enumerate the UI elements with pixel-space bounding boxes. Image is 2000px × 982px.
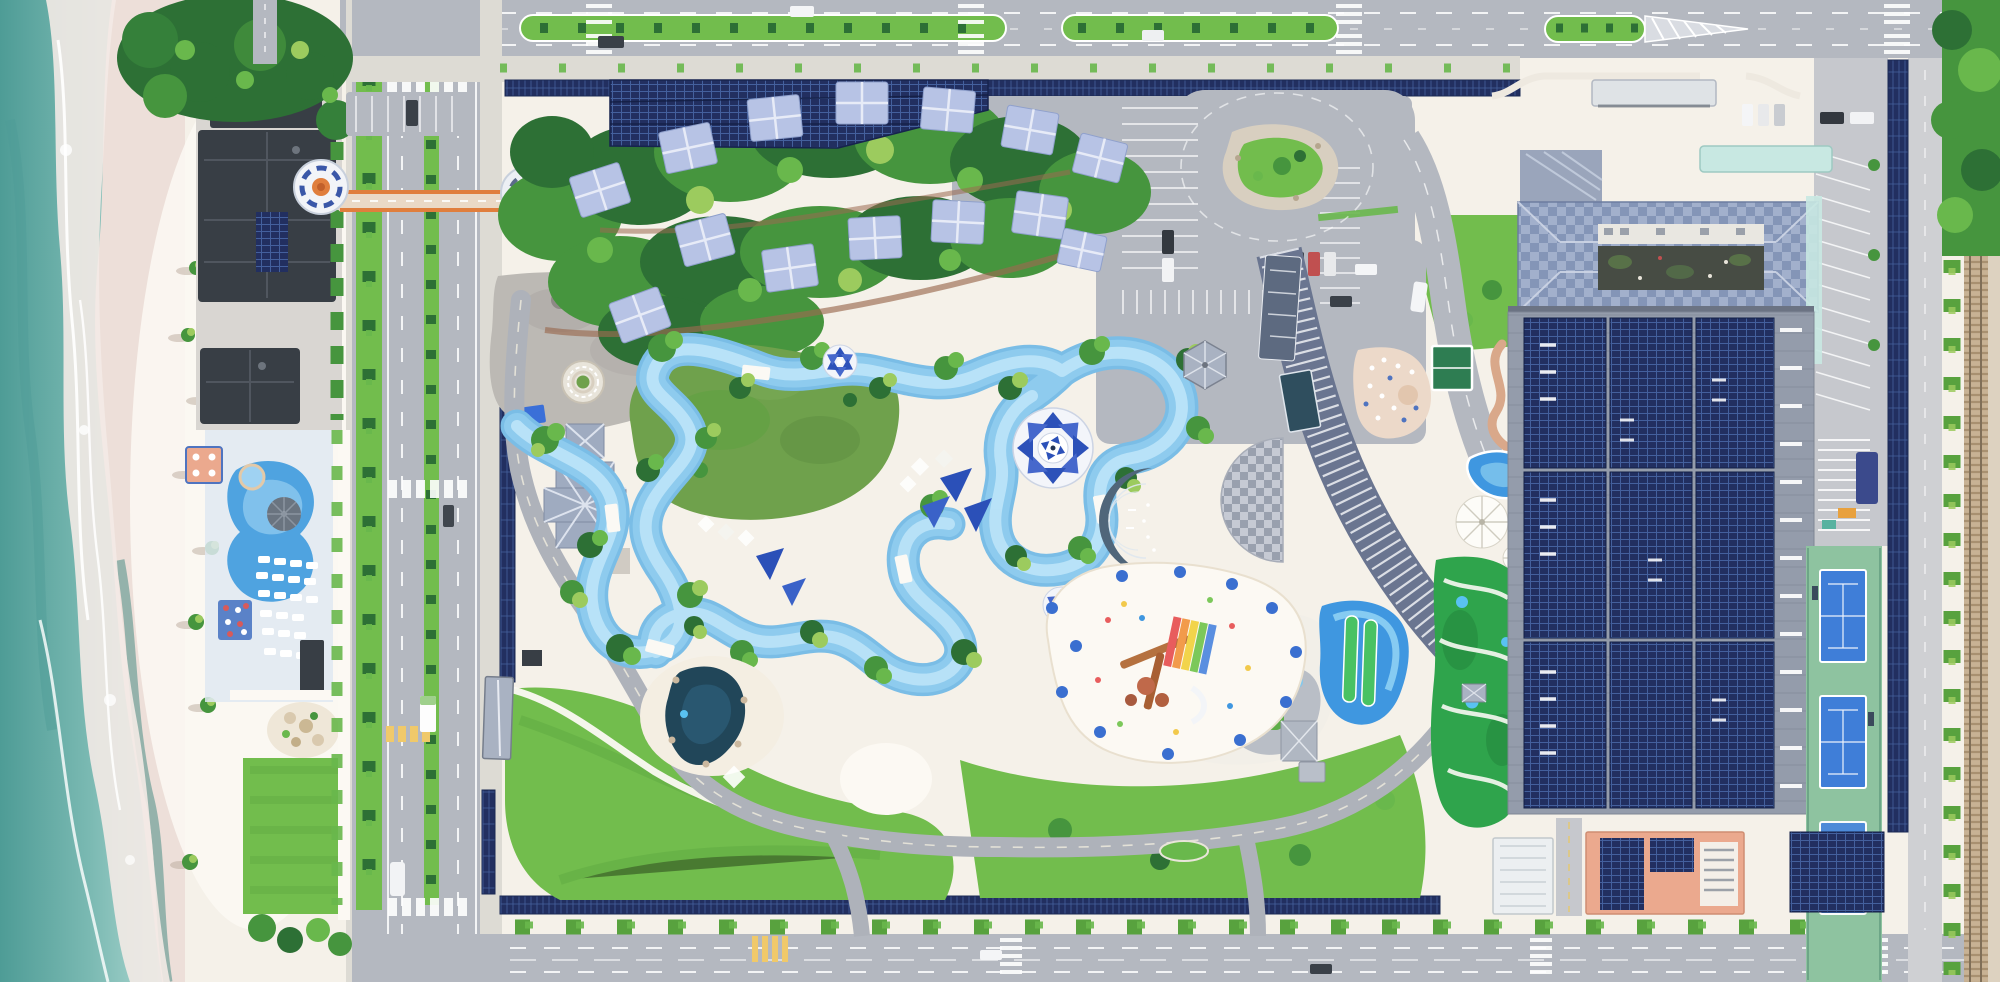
gate-canopy xyxy=(1592,80,1716,106)
truck xyxy=(1856,452,1878,504)
club-parking xyxy=(346,92,472,136)
beach-parasol xyxy=(267,497,301,531)
rock-garden xyxy=(267,702,339,758)
umbrella-tables xyxy=(218,600,252,640)
trees-northeast xyxy=(1931,0,2000,256)
white-building xyxy=(1493,838,1553,914)
bottom-road xyxy=(352,934,2000,982)
service-building xyxy=(300,640,324,698)
car xyxy=(980,950,1002,960)
roadside-solar-strip-right xyxy=(1888,60,1908,832)
car xyxy=(598,36,624,48)
car xyxy=(1310,964,1332,974)
tennis-court xyxy=(1820,696,1866,788)
car xyxy=(1758,104,1769,126)
aerial-photo xyxy=(0,0,2000,982)
car xyxy=(1142,30,1164,41)
kids-playground xyxy=(1046,563,1306,763)
car xyxy=(1742,104,1753,126)
beach-pool xyxy=(227,461,314,602)
bridge-tower-west xyxy=(294,160,348,214)
golf-pavilion xyxy=(1462,684,1486,702)
rooftop-solar-small xyxy=(1790,832,1884,912)
car xyxy=(790,6,814,17)
tennis-courts xyxy=(1806,546,1882,982)
shade-canopy-large xyxy=(1013,408,1093,488)
railway xyxy=(1964,252,1988,982)
rooftop-court xyxy=(1432,346,1472,390)
car xyxy=(1850,112,1874,124)
orange-deck xyxy=(186,447,222,483)
turnaround-island xyxy=(1160,841,1208,861)
sand-patch xyxy=(840,743,932,815)
coastal-road xyxy=(346,0,502,982)
top-road xyxy=(340,0,2000,58)
shade-canopy-small xyxy=(823,345,857,379)
roundabout-planter xyxy=(562,361,604,403)
car xyxy=(1820,112,1844,124)
tennis-court xyxy=(1820,570,1866,662)
car xyxy=(1774,104,1785,126)
sidewalk-north xyxy=(352,56,1520,82)
solar-roof-building xyxy=(1508,306,1814,814)
terracotta-building xyxy=(1586,832,1744,914)
